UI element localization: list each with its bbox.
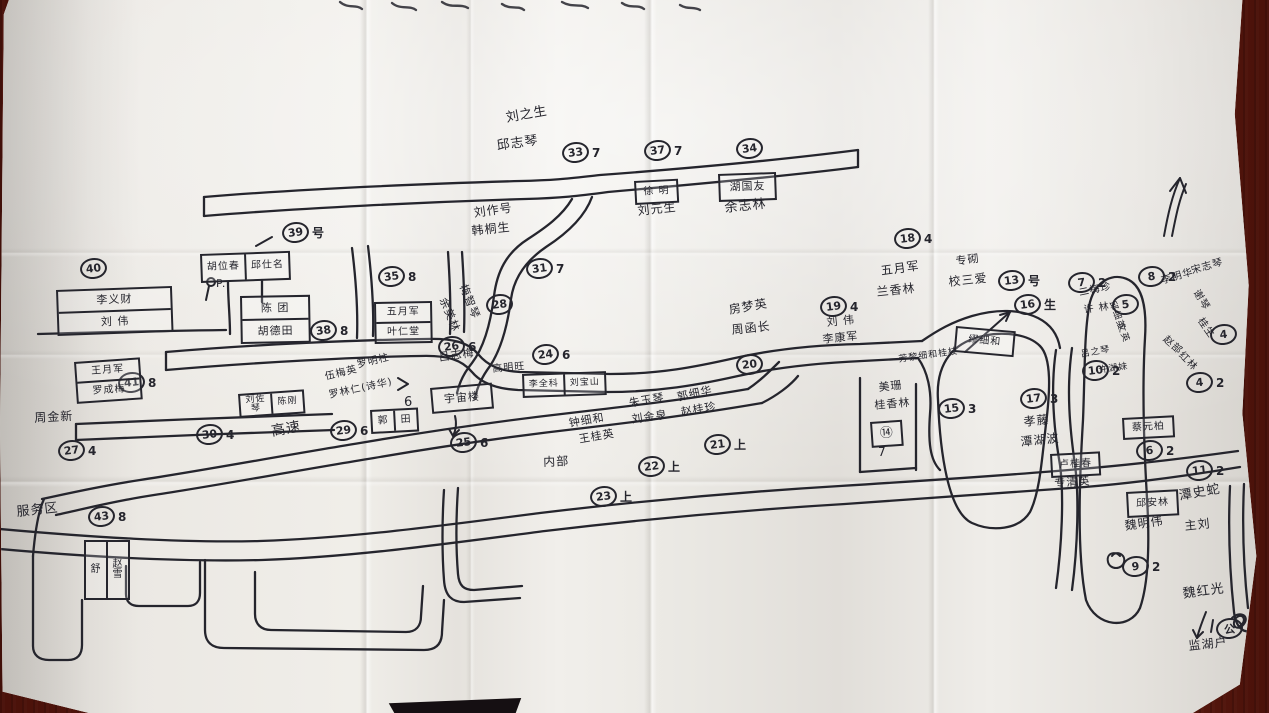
house-box: 缪细和 <box>954 326 1016 357</box>
marker-number: 21 <box>703 432 732 456</box>
map-label: 钟细和 <box>568 412 606 431</box>
house-box: 李义财刘 伟 <box>56 286 174 336</box>
circled-number-marker: 112 <box>1186 460 1224 481</box>
house-box: 刘佐琴陈刚 <box>238 389 306 418</box>
circled-number-marker: 20 <box>736 354 763 375</box>
circled-number-marker: 62 <box>1136 440 1174 461</box>
circled-number-marker: 21上 <box>704 434 746 455</box>
circled-number-marker: 184 <box>894 228 932 249</box>
circled-number-marker: 358 <box>378 266 416 287</box>
house-name: 郭 <box>372 411 394 432</box>
marker-suffix: 3 <box>1050 392 1058 406</box>
house-box: 舒赵 雪 <box>84 540 130 600</box>
marker-suffix: 8 <box>118 510 126 524</box>
map-label: 服务区 <box>16 502 59 521</box>
house-name: 刘 伟 <box>59 308 172 334</box>
circled-number-marker: 5 <box>1112 294 1139 315</box>
marker-suffix: 号 <box>1028 272 1040 289</box>
marker-number: 5 <box>1111 292 1140 316</box>
map-label: 谢琴 <box>1190 288 1211 313</box>
marker-suffix: 6 <box>562 348 570 362</box>
circled-number-marker: 39号 <box>282 222 324 243</box>
circled-number-marker: 153 <box>938 398 976 419</box>
marker-suffix: 7 <box>556 262 564 276</box>
marker-number: 24 <box>531 342 560 366</box>
map-label: 专砌 <box>955 253 981 269</box>
marker-suffix: 2 <box>1216 464 1224 478</box>
house-name: 舒 <box>86 542 106 598</box>
map-label: 罗明柱 <box>356 352 391 371</box>
circled-number-marker: 4 <box>1210 324 1237 345</box>
marker-suffix: 4 <box>850 300 858 314</box>
circled-number-marker: 102 <box>1082 360 1120 381</box>
house-name: ⑭ <box>872 422 901 446</box>
marker-number: 4 <box>1209 322 1238 346</box>
house-box: 邱安林 <box>1126 489 1179 518</box>
map-label: 孝藤 <box>1023 413 1050 429</box>
marker-suffix: 6 <box>468 340 476 354</box>
map-label: 周金新 <box>34 410 74 426</box>
circled-number-marker: 28 <box>486 294 513 315</box>
marker-suffix: 2 <box>1152 560 1160 574</box>
marker-number: 38 <box>309 318 338 342</box>
house-name: 胡位春 <box>202 254 245 280</box>
house-name: 陈 团 <box>242 297 308 319</box>
map-label: 宋志琴 <box>1190 257 1225 277</box>
house-name: 叶仁堂 <box>376 321 430 342</box>
circled-number-marker: 266 <box>438 336 476 357</box>
marker-suffix: 4 <box>88 444 96 458</box>
map-label: 赵桂珍 <box>680 401 718 420</box>
circled-number-marker: 16生 <box>1014 294 1056 315</box>
house-name: 刘佐琴 <box>240 394 271 416</box>
marker-number: 39 <box>281 220 310 244</box>
marker-suffix: 上 <box>668 458 680 475</box>
house-box: 宇宙楼 <box>430 383 494 414</box>
house-box: 徐 明 <box>634 179 679 205</box>
map-label: 7 <box>878 446 887 460</box>
marker-suffix: 8 <box>148 376 156 390</box>
marker-number: 22 <box>637 454 666 478</box>
marker-suffix: 7 <box>592 146 600 160</box>
house-box: 五月军叶仁堂 <box>374 301 433 344</box>
house-box: 郭田 <box>370 407 419 433</box>
marker-number: 9 <box>1121 554 1150 578</box>
map-label: 五月军 <box>880 260 921 279</box>
marker-suffix: 7 <box>674 144 682 158</box>
house-box: 王月军罗成梅 <box>74 357 143 404</box>
marker-suffix: 2 <box>1216 376 1224 390</box>
marker-suffix: 6 <box>360 424 368 438</box>
circled-number-marker: 337 <box>562 142 600 163</box>
house-name: 邱仕名 <box>244 253 289 280</box>
marker-suffix: 8 <box>340 324 348 338</box>
house-name: 邱安林 <box>1128 491 1177 515</box>
house-name: 田 <box>393 410 417 431</box>
map-label: 红林 <box>1176 350 1200 374</box>
map-label: 文英 <box>1114 322 1131 344</box>
marker-number: 40 <box>79 256 108 280</box>
marker-number: 10 <box>1081 358 1110 382</box>
map-label: 刘作号 <box>473 202 514 221</box>
house-box: 胡位春邱仕名 <box>200 251 291 283</box>
marker-number: 16 <box>1013 292 1042 316</box>
circled-number-marker: 173 <box>1020 388 1058 409</box>
house-name: 胡德田 <box>242 318 308 342</box>
marker-number: 4 <box>1185 370 1214 394</box>
circled-number-marker: 296 <box>330 420 368 441</box>
house-box: ⑭ <box>870 420 904 448</box>
house-name: 罗成梅 <box>77 377 140 401</box>
map-label: 魏红光 <box>1182 582 1226 603</box>
marker-suffix: 2 <box>1098 276 1106 290</box>
house-name: 缪细和 <box>956 328 1014 355</box>
circled-number-marker: 40 <box>80 258 107 279</box>
circled-number-marker: 34 <box>736 138 763 159</box>
marker-suffix: 6 <box>480 436 488 450</box>
house-box: 蔡元柏 <box>1122 415 1175 440</box>
house-box: 湖国友 <box>718 172 777 202</box>
circled-number-marker: 256 <box>450 432 488 453</box>
map-label: 兰香林 <box>876 282 916 300</box>
house-box: 陈 团胡德田 <box>240 295 311 344</box>
marker-suffix: 4 <box>924 232 932 246</box>
marker-number: 23 <box>589 484 618 508</box>
marker-number: 27 <box>57 438 86 462</box>
marker-suffix: 2 <box>1166 444 1174 458</box>
circled-number-marker: 377 <box>644 140 682 161</box>
map-label: 美珊 <box>878 379 903 394</box>
map-label: 潭史蛇 <box>1178 483 1222 505</box>
circled-number-marker: 438 <box>88 506 126 527</box>
marker-number: 15 <box>937 396 966 420</box>
marker-suffix: 上 <box>734 436 746 453</box>
marker-number: 26 <box>437 334 466 358</box>
map-label: 校三爱 <box>948 272 988 290</box>
marker-number: 28 <box>485 292 514 316</box>
map-label: 内部 <box>543 455 569 470</box>
marker-suffix: 2 <box>1112 364 1120 378</box>
marker-number: 公 <box>1215 616 1244 640</box>
circled-number-marker: 22上 <box>638 456 680 477</box>
house-name: 湖国友 <box>720 174 775 200</box>
marker-number: 13 <box>997 268 1026 292</box>
marker-number: 31 <box>525 256 554 280</box>
map-labels-layer: 刘之生邱志琴刘作号韩桐生刘元生余志林梅智琴余美林吕志梅高明旺罗明柱伍梅英罗林仁(… <box>0 0 1269 713</box>
circled-number-marker: 72 <box>1068 272 1106 293</box>
photo-of-hand-drawn-village-map: 刘之生邱志琴刘作号韩桐生刘元生余志林梅智琴余美林吕志梅高明旺罗明柱伍梅英罗林仁(… <box>0 0 1269 713</box>
marker-number: 34 <box>735 136 764 160</box>
marker-suffix: 3 <box>968 402 976 416</box>
map-label: 余美林 <box>436 296 461 334</box>
house-name: 刘宝山 <box>563 373 605 394</box>
map-label: 刘金泉 <box>631 409 668 427</box>
circled-number-marker: 194 <box>820 296 858 317</box>
circled-number-marker: 42 <box>1186 372 1224 393</box>
marker-number: 7 <box>1067 270 1096 294</box>
circled-number-marker: 公 <box>1216 618 1243 639</box>
marker-number: 25 <box>449 430 478 454</box>
map-label: 邱志琴 <box>496 134 540 155</box>
marker-number: 30 <box>195 422 224 446</box>
map-label: 刘之生 <box>505 105 549 127</box>
map-label: 高速 <box>270 419 302 440</box>
marker-suffix: 上 <box>620 488 632 505</box>
marker-number: 29 <box>329 418 358 442</box>
house-name: 陈刚 <box>270 392 303 414</box>
map-label: 桂香林 <box>874 397 911 413</box>
marker-suffix: 号 <box>312 224 324 241</box>
circled-number-marker: 23上 <box>590 486 632 507</box>
circled-number-marker: 274 <box>58 440 96 461</box>
map-label: 李康军 <box>822 330 859 346</box>
house-box: 李全科刘宝山 <box>522 371 607 398</box>
house-name: 徐 明 <box>636 181 677 203</box>
map-label: 吕之琴 <box>1080 345 1111 360</box>
map-label: 芳黎细和桂枝 <box>898 347 959 366</box>
marker-suffix: 2 <box>1168 270 1176 284</box>
paper-sheet: 刘之生邱志琴刘作号韩桐生刘元生余志林梅智琴余美林吕志梅高明旺罗明柱伍梅英罗林仁(… <box>0 0 1269 713</box>
map-label: 周函长 <box>731 320 771 338</box>
circled-number-marker: 82 <box>1138 266 1176 287</box>
circled-number-marker: 304 <box>196 424 234 445</box>
marker-number: 8 <box>1137 264 1166 288</box>
circled-number-marker: 246 <box>532 344 570 365</box>
map-label: 朱玉琴 <box>628 392 666 411</box>
marker-number: 35 <box>377 264 406 288</box>
house-name: 赵 雪 <box>106 542 128 598</box>
map-label: 主刘 <box>1184 517 1211 533</box>
house-box: 卢桂春 <box>1050 451 1101 478</box>
house-name: 李全科 <box>524 375 564 396</box>
map-label: 王桂英 <box>578 428 616 447</box>
map-label: 专清英 <box>1054 475 1091 490</box>
map-label: 韩桐生 <box>471 221 511 239</box>
map-label: 房梦英 <box>728 297 769 317</box>
marker-suffix: 8 <box>408 270 416 284</box>
marker-number: 43 <box>87 504 116 528</box>
circled-number-marker: 317 <box>526 258 564 279</box>
marker-suffix: 4 <box>226 428 234 442</box>
house-name: 宇宙楼 <box>432 385 492 412</box>
house-name: 五月军 <box>376 303 430 322</box>
marker-number: 19 <box>819 294 848 318</box>
marker-number: 37 <box>643 138 672 162</box>
marker-number: 6 <box>1135 438 1164 462</box>
map-label: 梅智琴 <box>456 283 481 321</box>
house-name: 蔡元柏 <box>1124 417 1173 437</box>
marker-number: 11 <box>1185 458 1214 482</box>
circled-number-marker: 92 <box>1122 556 1160 577</box>
circled-number-marker: 388 <box>310 320 348 341</box>
marker-number: 17 <box>1019 386 1048 410</box>
marker-suffix: 生 <box>1044 296 1056 313</box>
map-label: 伍梅英 <box>324 364 359 383</box>
marker-number: 20 <box>735 352 764 376</box>
map-label: 高明旺 <box>492 361 526 375</box>
marker-number: 33 <box>561 140 590 164</box>
circled-number-marker: 13号 <box>998 270 1040 291</box>
map-label: 潭湖波 <box>1020 432 1060 450</box>
marker-number: 18 <box>893 226 922 250</box>
house-name: 卢桂春 <box>1052 453 1099 475</box>
